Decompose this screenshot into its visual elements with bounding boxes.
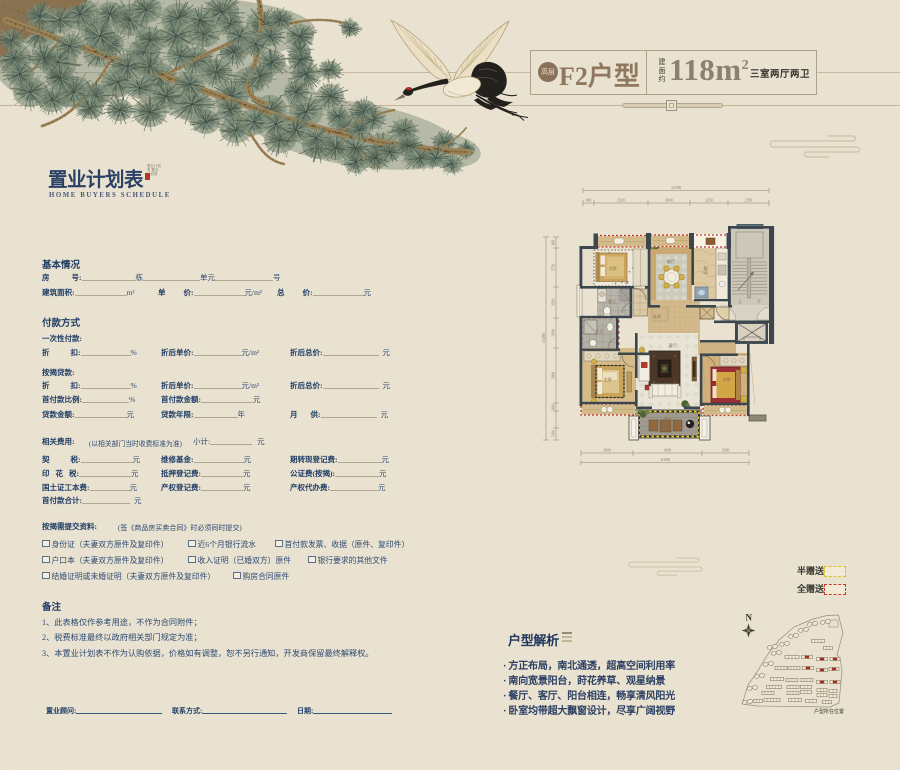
svg-text:阳台: 阳台 (664, 416, 672, 422)
svg-text:次卧: 次卧 (609, 265, 617, 272)
svg-text:800: 800 (552, 240, 556, 246)
svg-text:2750: 2750 (552, 264, 556, 272)
svg-text:4200: 4200 (664, 449, 672, 453)
svg-text:3500: 3500 (617, 199, 625, 203)
svg-text:3600: 3600 (603, 449, 611, 453)
svg-text:1300: 1300 (552, 430, 556, 438)
svg-text:2250: 2250 (705, 199, 713, 203)
svg-text:下: 下 (757, 299, 761, 304)
svg-text:3600: 3600 (665, 199, 673, 203)
svg-text:厨房: 厨房 (702, 266, 709, 274)
svg-text:900: 900 (586, 199, 592, 203)
svg-text:3200: 3200 (722, 449, 730, 453)
svg-text:客卫: 客卫 (608, 298, 616, 304)
svg-text:2900: 2900 (552, 329, 556, 337)
svg-text:次卧: 次卧 (723, 376, 731, 383)
svg-text:玄关: 玄关 (653, 313, 661, 319)
svg-text:上: 上 (738, 298, 742, 304)
svg-text:户型所在位置: 户型所在位置 (814, 708, 844, 715)
svg-text:2020: 2020 (552, 299, 556, 307)
svg-text:客厅: 客厅 (669, 342, 677, 349)
svg-text:800: 800 (552, 404, 556, 410)
svg-text:2700: 2700 (745, 199, 753, 203)
svg-text:3800: 3800 (552, 372, 556, 380)
svg-text:主卧: 主卧 (604, 376, 612, 383)
svg-text:餐厅: 餐厅 (667, 258, 675, 265)
svg-text:N: N (746, 613, 753, 623)
svg-text:12190: 12190 (671, 185, 681, 190)
svg-text:主卫: 主卫 (595, 328, 603, 334)
svg-text:11000: 11000 (660, 457, 670, 462)
svg-text:13490: 13490 (541, 333, 546, 343)
